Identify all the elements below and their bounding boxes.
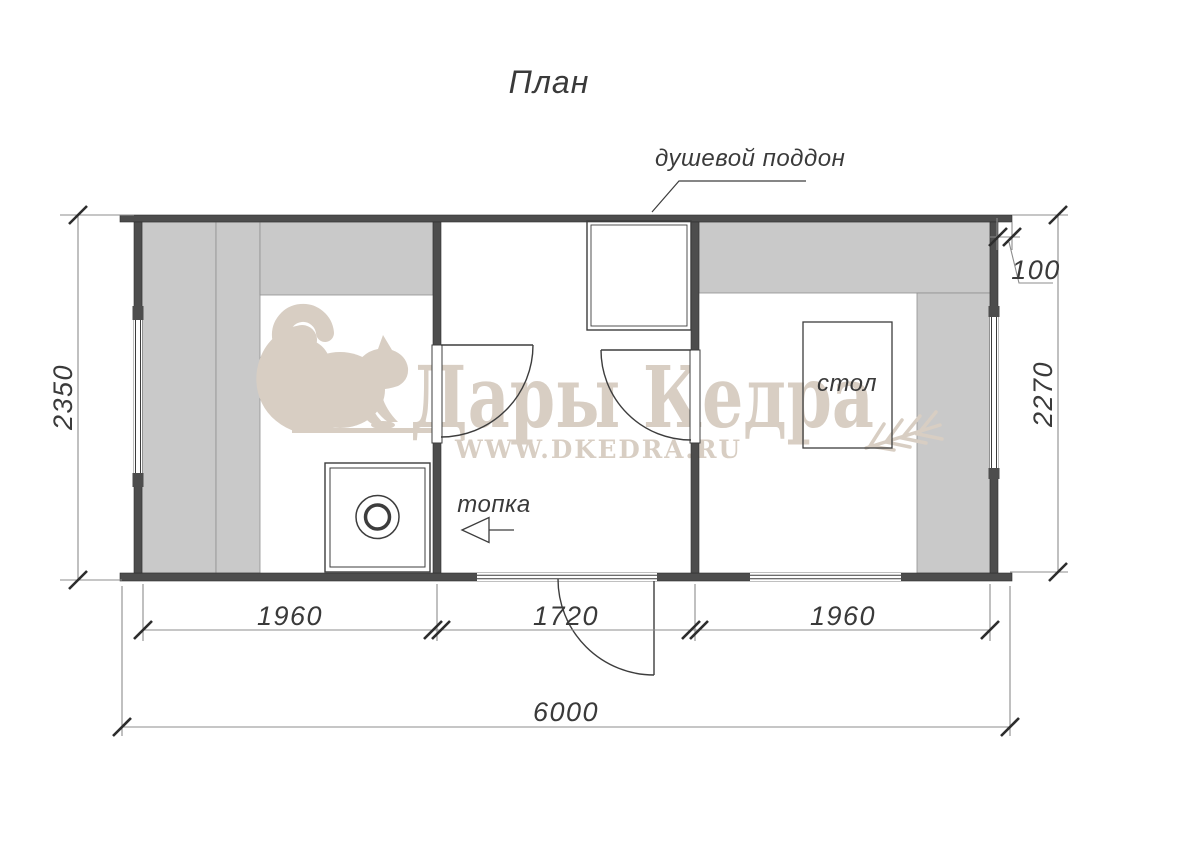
watermark-brand-text: Дары Кедра [410, 348, 874, 448]
dim-bay-left: 1960 [257, 601, 323, 631]
table-label: стол [817, 370, 877, 397]
sauna-bench-left-outer [142, 222, 216, 573]
floor-plan-canvas: Дары Кедра WWW.DKEDRA.RU [0, 0, 1200, 848]
sauna-bench-top [260, 222, 433, 295]
wall-top [120, 215, 1012, 222]
partition-left-upper [433, 222, 441, 345]
partition-right-lower [691, 443, 699, 573]
firebox-label: топка [457, 491, 530, 518]
floor-plan-drawing: Дары Кедра WWW.DKEDRA.RU [0, 0, 1200, 848]
dim-wall-overhang: 100 [1011, 255, 1061, 285]
partition-right-upper [691, 222, 699, 350]
door-frame-left [432, 345, 442, 443]
dim-bay-middle: 1720 [533, 601, 599, 631]
shower-tray-label: душевой поддон [655, 145, 845, 172]
dim-left-height: 2350 [48, 364, 78, 431]
page-title: План [509, 64, 590, 100]
rest-room-bench-right [917, 293, 990, 573]
door-frame-right [690, 350, 700, 443]
shower-leader-line [652, 181, 806, 212]
dim-bay-right: 1960 [810, 601, 876, 631]
rest-room-bench-top [699, 222, 990, 293]
dim-total-width: 6000 [533, 697, 599, 727]
dim-right-height: 2270 [1028, 361, 1058, 428]
sauna-bench-left-inner [216, 222, 260, 573]
partition-left-lower [433, 443, 441, 573]
firebox-arrow-icon [462, 518, 514, 543]
